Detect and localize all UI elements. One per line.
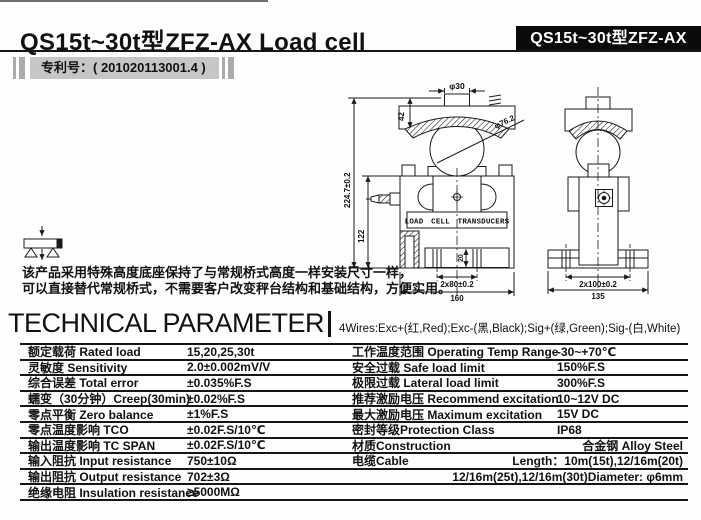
product-description: 该产品采用特殊高度底座保持了与常规桥式高度一样安装尺寸一样， 可以直接替代常规桥…: [22, 265, 451, 296]
dim-total-height: 224.7±0.2: [343, 172, 352, 208]
param-label: 密封等级Protection Class: [332, 421, 557, 438]
section-heading: TECHNICAL PARAMETER: [8, 310, 324, 337]
param-value: ±0.02%F.S: [187, 392, 332, 406]
param-value: 15,20,25,30t: [187, 345, 332, 359]
dim-base-width-side: 135: [591, 292, 605, 301]
dim-bolt-depth: 20: [458, 254, 465, 262]
param-value: 2.0±0.002mV/V: [187, 360, 332, 374]
param-value: 300%F.S: [557, 376, 688, 390]
param-value: ±0.02F.S/10℃: [187, 438, 332, 452]
param-value: Length：10m(15t),12/16m(20t): [409, 452, 688, 469]
param-value: ±1%F.S: [187, 407, 332, 421]
heading-divider: [328, 311, 331, 337]
param-label: 绝缘电阻 Insulation resistance: [20, 484, 187, 501]
param-value: 150%F.S: [557, 360, 688, 374]
param-label: 材质Construction: [332, 437, 557, 454]
param-value: 750±10Ω: [187, 454, 332, 468]
param-label: 极限过载 Lateral load limit: [332, 374, 557, 391]
param-label: 工作温度范围 Operating Temp Range: [332, 343, 557, 360]
param-value: IP68: [557, 423, 688, 437]
param-value: 12/16m(25t),12/16m(30t)Diameter: φ6mm: [332, 470, 688, 484]
dim-body-height: 122: [357, 229, 366, 243]
param-value: ≥5000MΩ: [187, 485, 332, 499]
description-line-1: 该产品采用特殊高度底座保持了与常规桥式高度一样安装尺寸一样，: [22, 265, 451, 281]
param-label: 灵敏度 Sensitivity: [20, 359, 187, 376]
param-value: ±0.035%F.S: [187, 376, 332, 390]
header-rule: [0, 50, 701, 52]
param-label: 蠕变（30分钟）Creep(30min): [20, 390, 187, 407]
dim-bolt-spacing-side: 2x100±0.2: [579, 280, 617, 289]
param-value: 702±3Ω: [187, 470, 332, 484]
dim-base-width-front: 160: [450, 294, 464, 303]
dim-plate-height: 42: [397, 112, 406, 121]
load-ball: [430, 122, 484, 176]
param-value: 10~12V DC: [557, 392, 688, 406]
param-label: 零点平衡 Zero balance: [20, 406, 187, 423]
patent-bar-left-1: [13, 57, 16, 79]
model-badge: QS15t~30t型ZFZ-AX: [516, 26, 701, 51]
beam-load-symbol: [24, 226, 62, 260]
param-value: 合金钢 Alloy Steel: [557, 437, 688, 454]
param-label: 电缆Cable: [332, 452, 409, 469]
patent-bar-right-1: [222, 57, 225, 79]
param-value: ±0.02F.S/10℃: [187, 423, 332, 437]
table-row: 绝缘电阻 Insulation resistance ≥5000MΩ: [20, 485, 688, 501]
technical-parameter-header: TECHNICAL PARAMETER 4Wires:Exc+(红,Red);E…: [8, 310, 680, 337]
parameter-table: 额定载荷 Rated load 15,20,25,30t 工作温度范围 Oper…: [20, 343, 688, 501]
load-button: [445, 94, 470, 106]
cable-plug: [366, 193, 400, 205]
description-line-2: 可以直接替代常规桥式，不需要客户改变秤台结构和基础结构，方便实用。: [22, 281, 451, 297]
param-label: 零点温度影响 TCO: [20, 421, 187, 438]
param-value: 15V DC: [557, 407, 688, 421]
param-label: 额定载荷 Rated load: [20, 343, 187, 360]
param-label: 输出温度影响 TC SPAN: [20, 437, 187, 454]
dim-button-diameter: φ30: [449, 81, 465, 91]
param-label: 安全过载 Safe load limit: [332, 359, 557, 376]
side-view: 2x100±0.2 135: [548, 87, 648, 301]
param-label: 输出阻抗 Output resistance: [20, 468, 187, 485]
patent-number: 专利号：( 201020113001.4 ): [30, 57, 219, 79]
param-value: -30~+70℃: [557, 345, 688, 359]
patent-bar-left-2: [19, 57, 25, 79]
param-label: 综合误差 Total error: [20, 374, 187, 391]
datasheet-page: LOAD CELL TRANSDUCERS: [0, 0, 701, 520]
param-label: 最大激励电压 Maximum excitation: [332, 406, 557, 423]
patent-bar-right-2: [228, 57, 234, 79]
param-label: 输入阻抗 Input resistance: [20, 452, 187, 469]
param-label: 推荐激励电压 Recommend excitation: [332, 390, 557, 407]
wiring-legend: 4Wires:Exc+(红,Red);Exc-(黑,Black);Sig+(绿,…: [339, 320, 680, 337]
